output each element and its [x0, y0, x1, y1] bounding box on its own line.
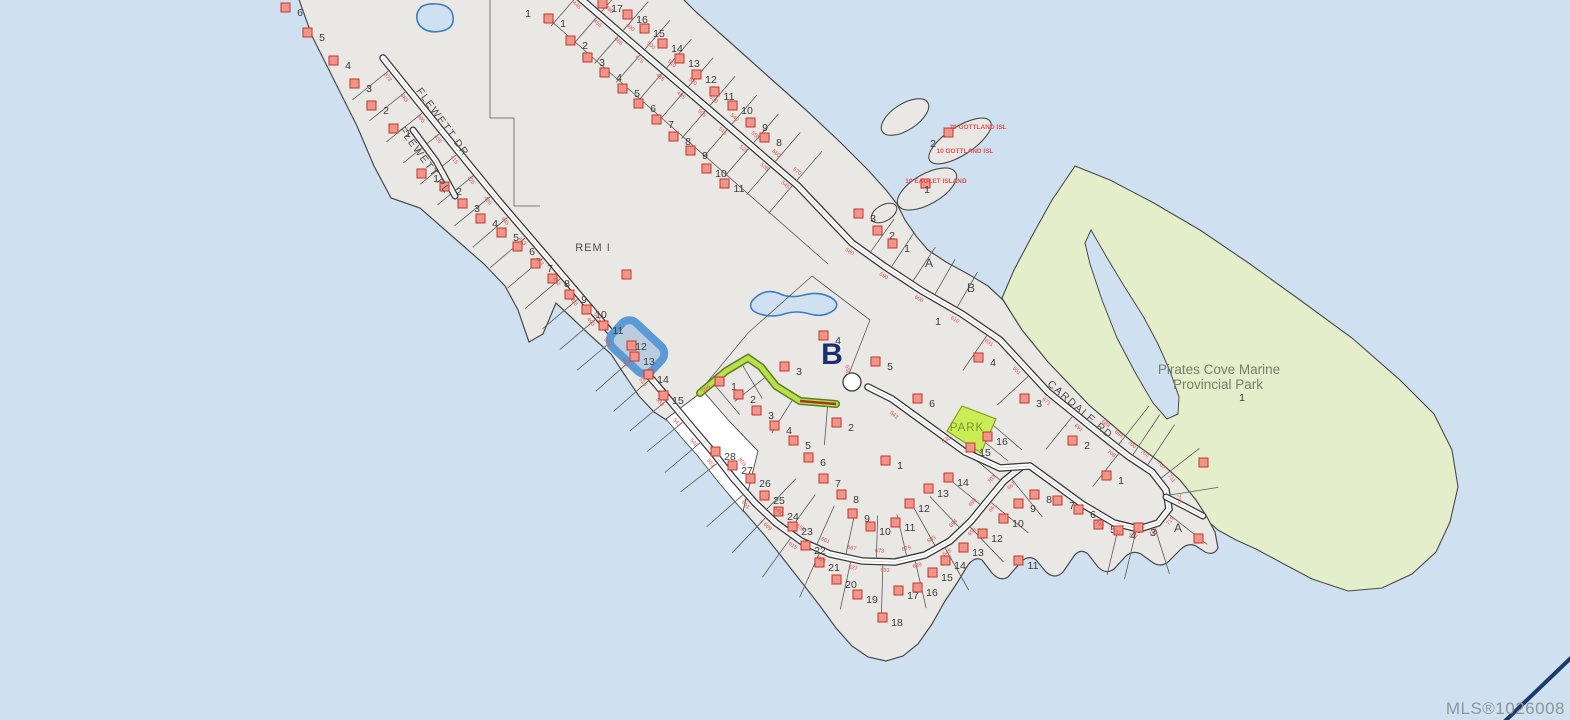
lot-number: 15 — [653, 28, 665, 40]
lot-number: 2 — [930, 138, 936, 150]
building-marker — [669, 132, 678, 141]
lot-number: 6 — [297, 7, 303, 19]
building-marker — [728, 101, 737, 110]
lot-number: 2 — [456, 186, 462, 198]
park-name-line1: Pirates Cove Marine — [1158, 362, 1280, 377]
building-marker — [804, 453, 813, 462]
block-label-b: B — [821, 338, 843, 371]
dimension-label: 673 — [875, 548, 884, 554]
building-marker — [497, 228, 506, 237]
lot-number: 7 — [668, 119, 674, 131]
building-marker — [1074, 505, 1083, 514]
lot-number: 6 — [650, 103, 656, 115]
lot-number: 2 — [582, 40, 588, 52]
building-marker — [658, 39, 667, 48]
building-marker — [1020, 394, 1029, 403]
lot-number: 12 — [991, 533, 1003, 545]
lot-number: 9 — [1030, 503, 1036, 515]
lot-number: 6 — [529, 246, 535, 258]
building-marker — [350, 79, 359, 88]
lot-number: 7 — [547, 263, 553, 275]
building-marker — [329, 56, 338, 65]
building-marker — [913, 583, 922, 592]
building-marker — [544, 14, 553, 23]
lot-number: 4 — [786, 425, 792, 437]
building-marker — [853, 590, 862, 599]
lot-number: 24 — [787, 511, 799, 523]
lot-number: 7 — [835, 478, 841, 490]
lot-number: 4 — [990, 357, 996, 369]
selected-lot-number: 12 — [635, 341, 647, 353]
lot-number: 19 — [866, 594, 878, 606]
building-marker — [476, 214, 485, 223]
lot-number: 22 — [814, 545, 826, 557]
lot-number: 8 — [564, 278, 570, 290]
lot-number: 13 — [643, 356, 655, 368]
building-marker — [1199, 458, 1208, 467]
lot-number: 2 — [1084, 440, 1090, 452]
lot-number: 13 — [937, 488, 949, 500]
rem-parcel-label: REM I — [575, 242, 611, 254]
building-marker — [1068, 436, 1077, 445]
lot-number: 12 — [918, 503, 930, 515]
building-marker — [1053, 496, 1062, 505]
building-marker — [913, 394, 922, 403]
building-marker — [1030, 490, 1039, 499]
building-marker — [1014, 499, 1023, 508]
building-marker — [734, 390, 743, 399]
lot-number: 5 — [319, 32, 325, 44]
mls-watermark: MLS®1026008 — [1446, 699, 1565, 719]
building-marker — [1194, 534, 1203, 543]
lot-number: 13 — [688, 58, 700, 70]
cul-de-sac — [843, 373, 861, 391]
lot-number: 8 — [776, 137, 782, 149]
park-parcel-label: PARK — [950, 422, 984, 434]
lot-number: 4 — [345, 60, 351, 72]
lot-letter: A — [925, 256, 933, 270]
building-marker — [848, 509, 857, 518]
building-marker — [832, 418, 841, 427]
building-marker — [583, 53, 592, 62]
building-marker — [760, 133, 769, 142]
lot-number: 1 — [904, 243, 910, 255]
building-marker — [458, 199, 467, 208]
building-marker — [640, 24, 649, 33]
building-marker — [871, 357, 880, 366]
lot-number: 2 — [383, 105, 389, 117]
lot-letter: A — [1174, 521, 1182, 535]
building-marker — [622, 270, 631, 279]
building-marker — [1014, 556, 1023, 565]
lot-number: 15 — [941, 572, 953, 584]
building-marker — [634, 99, 643, 108]
lot-number: 6 — [1090, 509, 1096, 521]
lot-number: 10 — [1012, 518, 1024, 530]
lot-number: 3 — [474, 203, 480, 215]
building-marker — [770, 421, 779, 430]
building-marker — [600, 68, 609, 77]
lot-number: 10 — [879, 526, 891, 538]
building-marker — [644, 370, 653, 379]
building-marker — [801, 541, 810, 550]
lot-number: 10 — [741, 105, 753, 117]
lot-number: 9 — [581, 294, 587, 306]
lot-number: 14 — [957, 477, 969, 489]
lot-number: 3 — [796, 366, 802, 378]
building-marker — [715, 377, 724, 386]
building-marker — [1102, 471, 1111, 480]
building-marker — [582, 305, 591, 314]
building-marker — [686, 146, 695, 155]
lot-number: 11 — [1028, 560, 1039, 572]
building-marker — [974, 353, 983, 362]
building-marker — [881, 456, 890, 465]
lot-number: 11 — [905, 522, 916, 534]
lot-number: 6 — [929, 398, 935, 410]
building-marker — [281, 3, 290, 12]
building-marker — [746, 474, 755, 483]
lot-number: 10 — [715, 168, 727, 180]
building-marker — [752, 406, 761, 415]
building-marker — [303, 28, 312, 37]
lot-number: 15 — [672, 395, 684, 407]
lot-number: 13 — [972, 547, 984, 559]
building-marker — [1134, 523, 1143, 532]
lot-number: 2 — [848, 422, 854, 434]
lot-number: 5 — [805, 440, 811, 452]
lot-number: 16 — [996, 436, 1008, 448]
building-marker — [618, 84, 627, 93]
lot-number: 14 — [657, 374, 669, 386]
building-marker — [866, 522, 875, 531]
dimension-label: 633 — [880, 568, 889, 574]
building-marker — [924, 484, 933, 493]
lot-letter: B — [967, 281, 975, 295]
building-marker — [983, 432, 992, 441]
lot-number: 9 — [702, 150, 708, 162]
building-marker — [789, 436, 798, 445]
lot-number: 2 — [750, 394, 756, 406]
building-marker — [720, 179, 729, 188]
building-marker — [944, 473, 953, 482]
lot-number: 3 — [870, 213, 876, 225]
building-marker — [878, 613, 887, 622]
lot-number: 1 — [924, 184, 930, 196]
island-name-label: 10 GOTTLAND ISL — [936, 148, 993, 155]
building-marker — [367, 101, 376, 110]
building-marker — [959, 543, 968, 552]
building-marker — [966, 443, 975, 452]
lot-number: 1 — [525, 8, 531, 20]
lot-number: 15 — [979, 447, 991, 459]
lot-number: 14 — [671, 43, 683, 55]
building-marker — [780, 362, 789, 371]
island-name-label: 20 GOTTLAND ISL — [949, 124, 1006, 131]
building-marker — [652, 115, 661, 124]
lot-number: 18 — [891, 617, 903, 629]
building-marker — [746, 118, 755, 127]
lot-number: 8 — [1046, 494, 1052, 506]
building-marker — [905, 499, 914, 508]
building-marker — [854, 209, 863, 218]
map-canvas[interactable]: 12 6543211234567891011131415123456717161… — [0, 0, 1570, 720]
building-marker — [675, 54, 684, 63]
lot-number: 5 — [887, 361, 893, 373]
lot-number: 5 — [634, 88, 640, 100]
park-name-line2: Provincial Park — [1173, 377, 1263, 392]
building-marker — [891, 518, 900, 527]
lot-number: 21 — [828, 562, 840, 574]
lot-number: 4 — [616, 72, 622, 84]
building-marker — [888, 239, 897, 248]
lot-number: 1 — [935, 316, 941, 328]
lot-number: 3 — [599, 57, 605, 69]
lot-number: 26 — [759, 478, 771, 490]
building-marker — [630, 352, 639, 361]
lot-number: 3 — [366, 83, 372, 95]
lot-number: 11 — [734, 183, 745, 195]
lot-number: 12 — [705, 74, 717, 86]
lot-number: 11 — [613, 325, 624, 337]
building-marker — [728, 461, 737, 470]
building-marker — [702, 164, 711, 173]
building-marker — [760, 491, 769, 500]
building-marker — [894, 586, 903, 595]
building-marker — [999, 514, 1008, 523]
lot-number: 1 — [897, 460, 903, 472]
lot-number: 1 — [560, 18, 566, 30]
lot-number: 3 — [768, 410, 774, 422]
lot-number: 14 — [954, 560, 966, 572]
building-marker — [623, 10, 632, 19]
building-marker — [711, 447, 720, 456]
island-name-label: 10 EAGLET ISLAND — [905, 178, 967, 185]
building-marker — [832, 575, 841, 584]
building-marker — [837, 490, 846, 499]
building-marker — [873, 226, 882, 235]
lot-number: 9 — [762, 122, 768, 134]
lot-number: 16 — [926, 587, 938, 599]
building-marker — [928, 568, 937, 577]
building-marker — [566, 36, 575, 45]
building-marker — [599, 321, 608, 330]
lot-number: 1 — [1118, 475, 1124, 487]
building-marker — [978, 529, 987, 538]
lot-number: 8 — [853, 494, 859, 506]
lot-number: 6 — [820, 457, 826, 469]
building-marker — [819, 474, 828, 483]
lot-number: 25 — [773, 495, 785, 507]
building-marker — [941, 556, 950, 565]
park-lot-number: 1 — [1239, 392, 1245, 404]
lot-number: 20 — [845, 579, 857, 591]
